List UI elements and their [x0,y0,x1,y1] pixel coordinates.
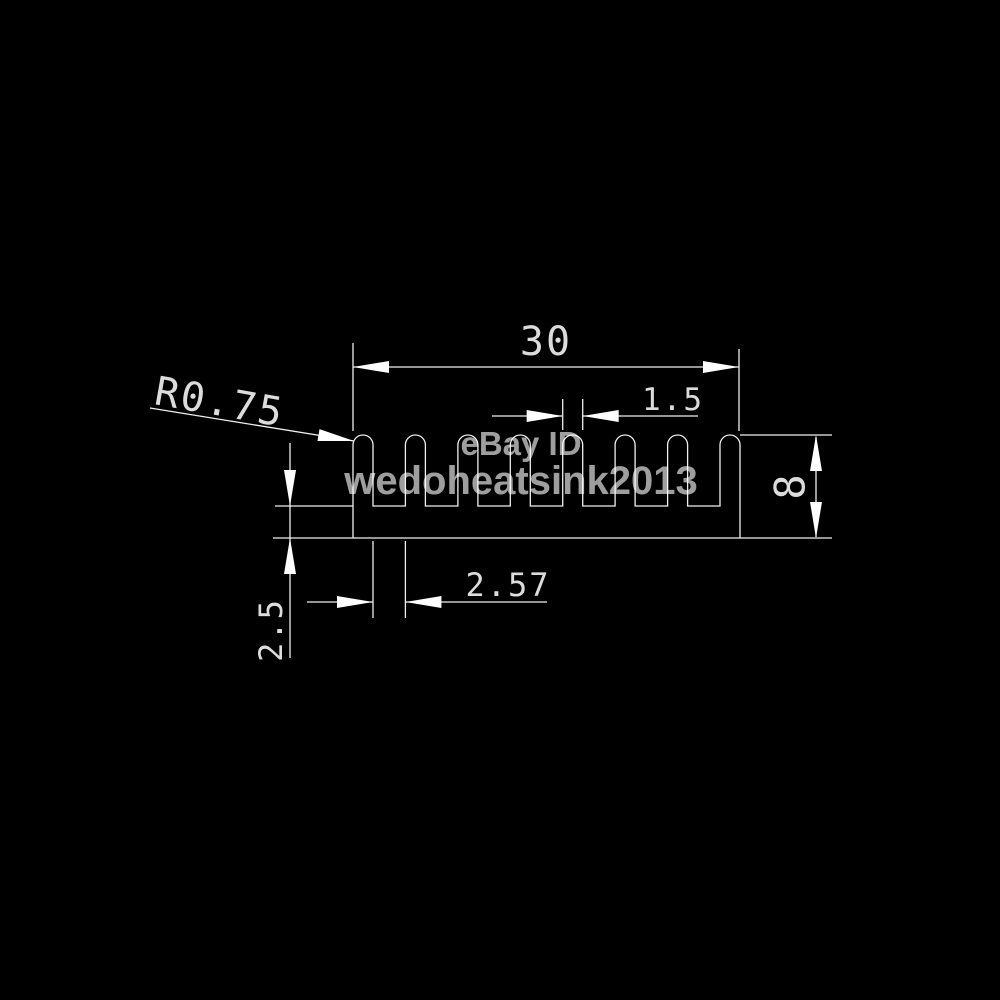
dim-label-fin-radius: R0.75 [151,369,287,437]
dim-label-overall-height: 8 [766,472,815,499]
dim-label-base-thickness: 2.5 [252,598,290,662]
dim-label-overall-width: 30 [520,319,572,365]
arrowhead-down [284,470,296,506]
dim-overall-height: 8 [740,435,832,538]
dim-label-fin-gap: 2.57 [465,566,550,604]
arrowhead-left [353,361,389,373]
heatsink-profile [273,435,832,538]
dim-base-thickness: 2.5 [252,443,296,662]
leader-fin-radius: R0.75 [150,369,354,441]
arrowhead-right [583,410,619,422]
arrowhead-right [703,361,739,373]
arrowhead-left [405,596,441,608]
arrowhead-up [284,538,296,574]
dim-fin-width: 1.5 [492,382,704,430]
arrowhead-top [810,435,822,471]
dim-fin-gap: 2.57 [307,541,551,618]
profile-outline [353,435,740,538]
heatsink-technical-drawing: 30 1.5 R0.75 8 [0,0,1000,1000]
arrowhead-right [337,596,373,608]
arrowhead-bottom [810,502,822,538]
arrowhead-left [527,410,563,422]
arrowhead [318,429,355,441]
drawing-canvas: 30 1.5 R0.75 8 [0,0,1000,1000]
dim-label-fin-width: 1.5 [642,382,704,418]
